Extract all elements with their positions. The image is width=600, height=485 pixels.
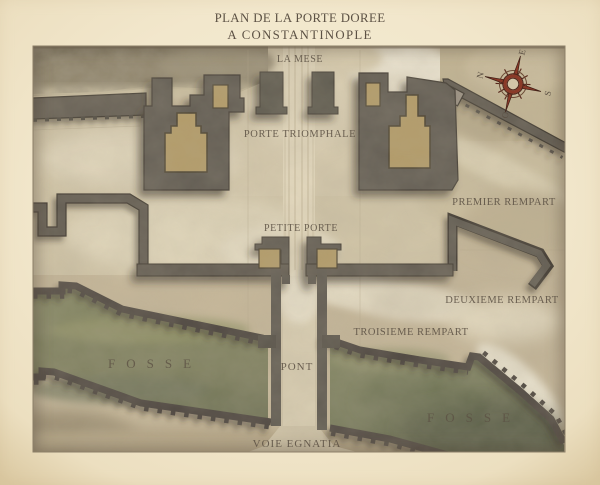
svg-text:FOSSE: FOSSE <box>108 356 202 371</box>
svg-text:LA MESE: LA MESE <box>277 54 323 65</box>
svg-text:PORTE TRIOMPHALE: PORTE TRIOMPHALE <box>244 129 356 140</box>
svg-text:DEUXIEME REMPART: DEUXIEME REMPART <box>445 295 559 306</box>
svg-text:PLAN DE LA PORTE DOREE: PLAN DE LA PORTE DOREE <box>215 11 386 25</box>
svg-text:VOIE EGNATIA: VOIE EGNATIA <box>253 438 342 450</box>
svg-text:PREMIER REMPART: PREMIER REMPART <box>452 197 556 208</box>
svg-text:FOSSE: FOSSE <box>427 410 521 425</box>
svg-text:PETITE PORTE: PETITE PORTE <box>264 223 338 234</box>
svg-text:PONT: PONT <box>281 361 314 373</box>
svg-text:TROISIEME REMPART: TROISIEME REMPART <box>353 327 468 338</box>
svg-text:A CONSTANTINOPLE: A CONSTANTINOPLE <box>227 28 372 42</box>
